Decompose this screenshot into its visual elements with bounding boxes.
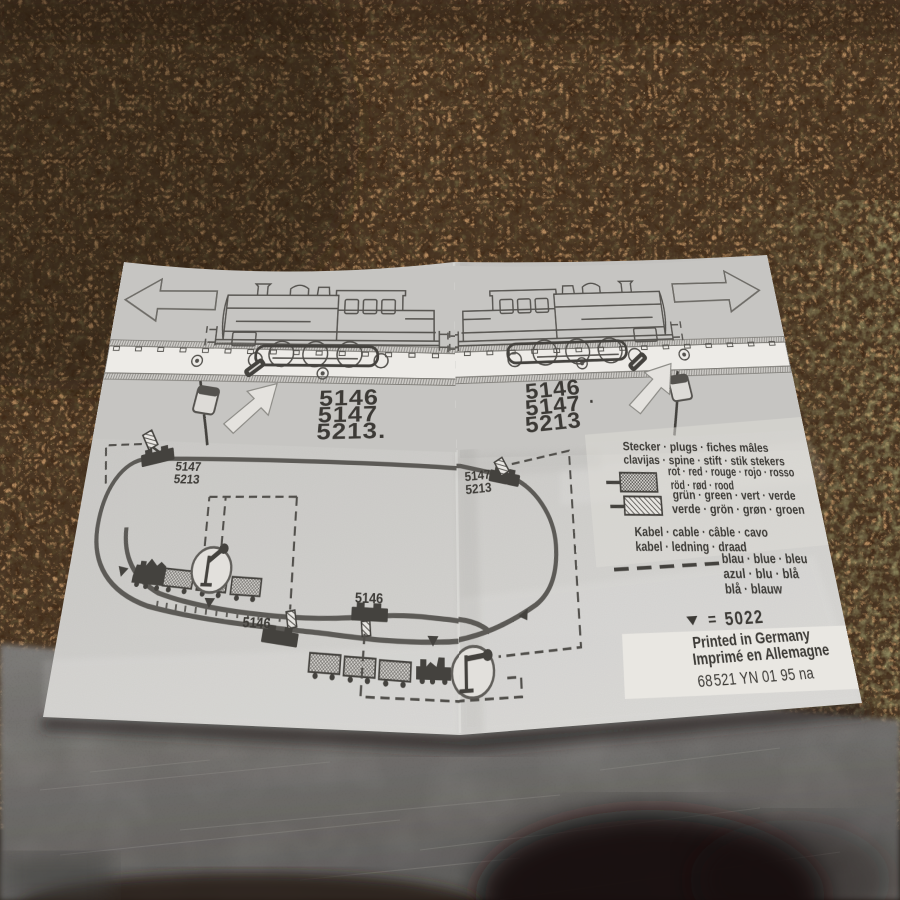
svg-text:blau · blue · bleu: blau · blue · bleu [721, 552, 809, 567]
svg-text:azul · blu · blå: azul · blu · blå [722, 566, 800, 582]
svg-text:5213: 5213 [173, 472, 201, 487]
svg-text:5022: 5022 [723, 606, 765, 630]
svg-text:5146: 5146 [355, 590, 384, 608]
svg-text:Kabel · cable · câble · cavo: Kabel · cable · câble · cavo [634, 526, 769, 541]
svg-text:5213: 5213 [465, 481, 492, 498]
svg-text:rot · red · rouge · rojo · ros: rot · red · rouge · rojo · rosso [667, 465, 795, 480]
svg-text:verde · grön · grøn · groen: verde · grön · grøn · groen [672, 503, 806, 518]
svg-text:5213.: 5213. [316, 417, 386, 444]
svg-text:blå · blauw: blå · blauw [724, 581, 783, 598]
svg-text:=: = [707, 609, 718, 630]
svg-text:grün · green · vert · verde: grün · green · vert · verde [672, 489, 797, 504]
svg-text:5146: 5146 [242, 615, 271, 633]
